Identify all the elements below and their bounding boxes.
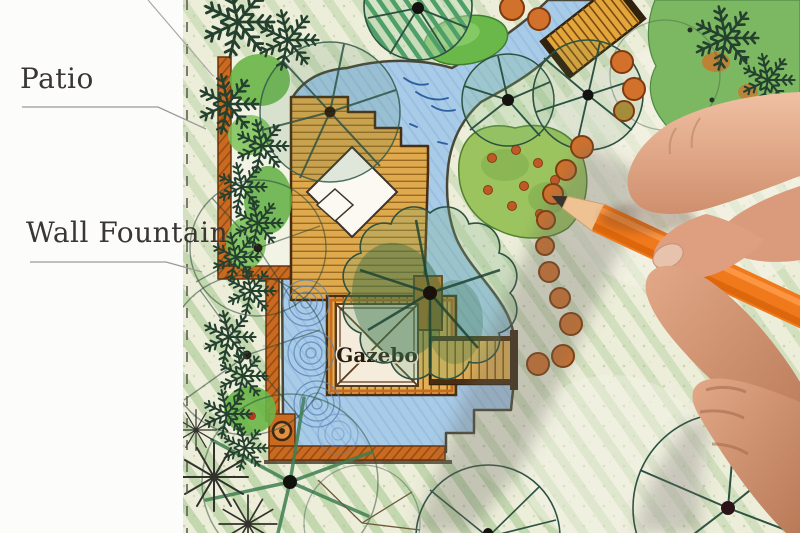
stepping-stone	[611, 51, 633, 73]
garden-plan-scene: Gazebo	[0, 0, 800, 533]
patio-label: Patio	[20, 62, 94, 95]
landscape-plan-photo: Gazebo	[0, 0, 800, 533]
wall-fountain-label: Wall Fountain	[26, 216, 228, 249]
stepping-stone	[623, 78, 645, 100]
stepping-stone	[528, 8, 550, 30]
stepping-stone	[500, 0, 524, 20]
